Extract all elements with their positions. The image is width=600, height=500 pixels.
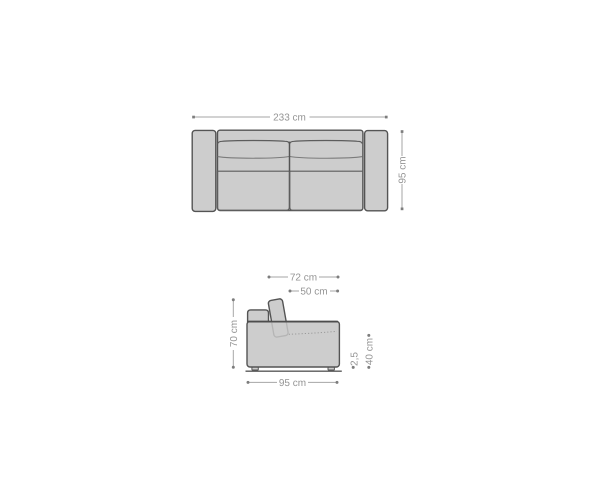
- svg-text:70 cm: 70 cm: [229, 320, 240, 347]
- svg-text:2,5: 2,5: [350, 352, 361, 366]
- svg-text:95 cm: 95 cm: [398, 156, 409, 183]
- svg-text:72 cm: 72 cm: [290, 273, 317, 284]
- svg-text:50 cm: 50 cm: [300, 287, 327, 298]
- svg-text:40 cm: 40 cm: [365, 338, 376, 365]
- svg-text:95 cm: 95 cm: [279, 378, 306, 389]
- svg-text:233 cm: 233 cm: [273, 113, 306, 124]
